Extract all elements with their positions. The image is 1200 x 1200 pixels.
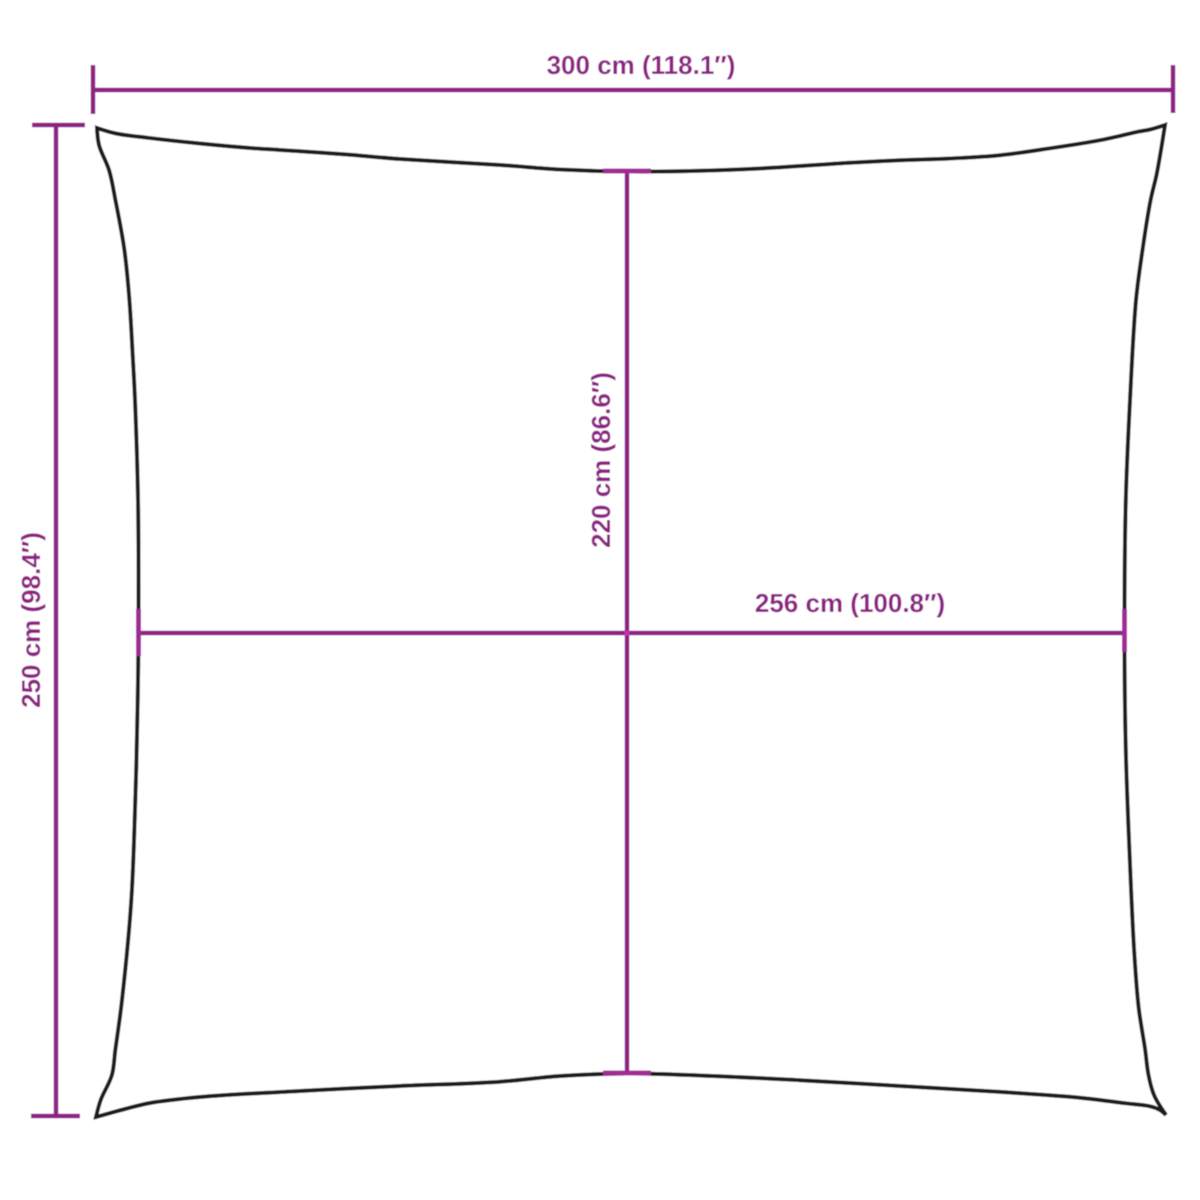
svg-text:256 cm (100.8″): 256 cm (100.8″) <box>755 588 945 618</box>
svg-text:220 cm (86.6″): 220 cm (86.6″) <box>586 372 616 548</box>
svg-text:250 cm (98.4″): 250 cm (98.4″) <box>16 532 46 708</box>
svg-text:300 cm (118.1″): 300 cm (118.1″) <box>547 50 736 80</box>
